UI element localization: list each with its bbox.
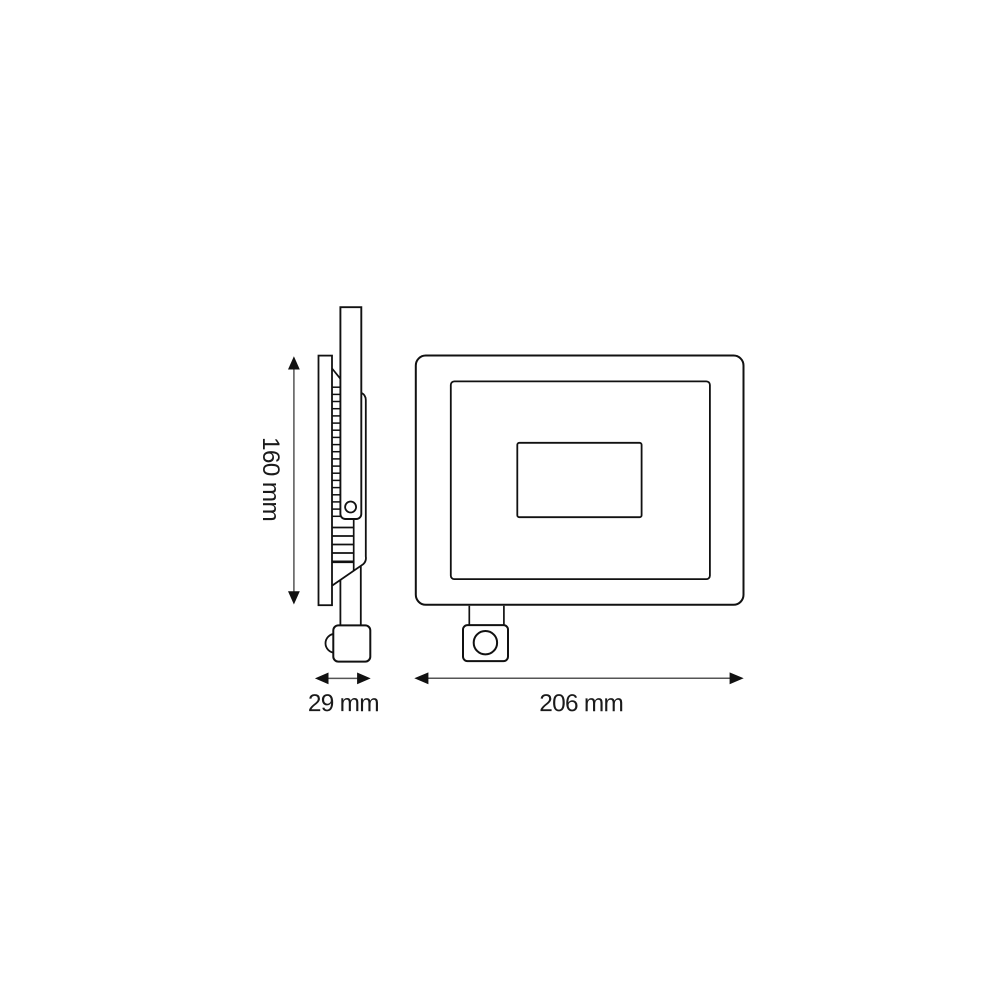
svg-text:29 mm: 29 mm — [308, 690, 379, 717]
svg-text:160 mm: 160 mm — [257, 437, 284, 521]
svg-text:206 mm: 206 mm — [539, 690, 623, 717]
